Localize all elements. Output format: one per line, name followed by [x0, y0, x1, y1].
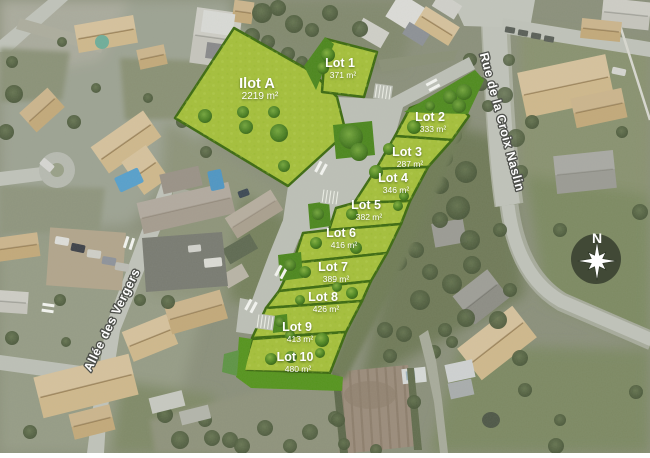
- svg-text:Lot 3: Lot 3: [392, 145, 422, 159]
- svg-text:Lot 5: Lot 5: [351, 198, 381, 212]
- svg-text:416 m²: 416 m²: [331, 240, 358, 250]
- svg-text:Ilot A: Ilot A: [239, 76, 275, 92]
- svg-text:413 m²: 413 m²: [287, 334, 314, 344]
- svg-text:333 m²: 333 m²: [420, 124, 447, 134]
- svg-text:Lot 8: Lot 8: [308, 290, 338, 304]
- svg-text:426 m²: 426 m²: [313, 304, 340, 314]
- svg-text:480 m²: 480 m²: [285, 364, 312, 374]
- svg-text:389 m²: 389 m²: [323, 274, 350, 284]
- svg-text:Lot 7: Lot 7: [318, 260, 348, 274]
- svg-text:Lot 10: Lot 10: [277, 350, 314, 364]
- svg-text:Lot 9: Lot 9: [282, 320, 312, 334]
- svg-text:Lot 1: Lot 1: [325, 56, 355, 70]
- svg-text:N: N: [592, 230, 602, 246]
- svg-text:382 m²: 382 m²: [356, 212, 383, 222]
- svg-text:Lot 2: Lot 2: [415, 110, 445, 124]
- svg-text:2219 m²: 2219 m²: [242, 91, 279, 102]
- svg-text:287 m²: 287 m²: [397, 159, 424, 169]
- svg-text:Lot 6: Lot 6: [326, 226, 356, 240]
- svg-text:Lot 4: Lot 4: [378, 171, 408, 185]
- svg-text:346 m²: 346 m²: [383, 185, 410, 195]
- svg-text:371 m²: 371 m²: [330, 70, 357, 80]
